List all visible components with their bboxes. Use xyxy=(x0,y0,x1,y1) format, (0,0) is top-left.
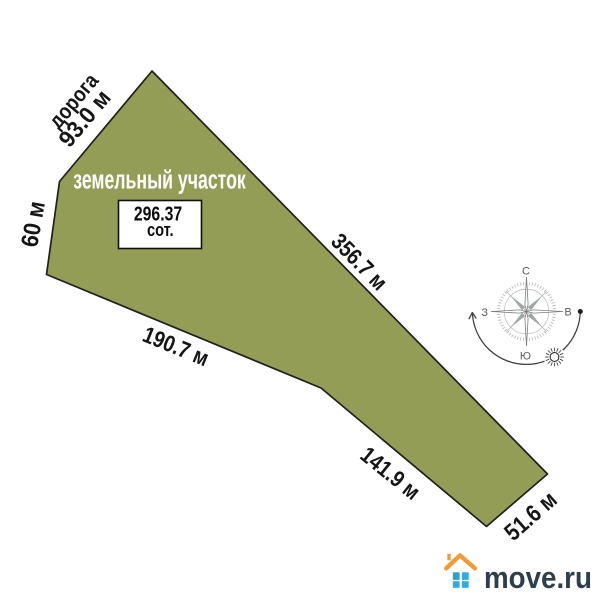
svg-text:земельный участок: земельный участок xyxy=(73,165,246,194)
svg-text:С: С xyxy=(522,265,530,277)
svg-text:Ю: Ю xyxy=(520,350,531,362)
svg-text:В: В xyxy=(564,307,571,319)
svg-text:move.ru: move.ru xyxy=(484,562,592,595)
svg-text:сот.: сот. xyxy=(147,219,174,240)
svg-text:З: З xyxy=(481,307,488,319)
